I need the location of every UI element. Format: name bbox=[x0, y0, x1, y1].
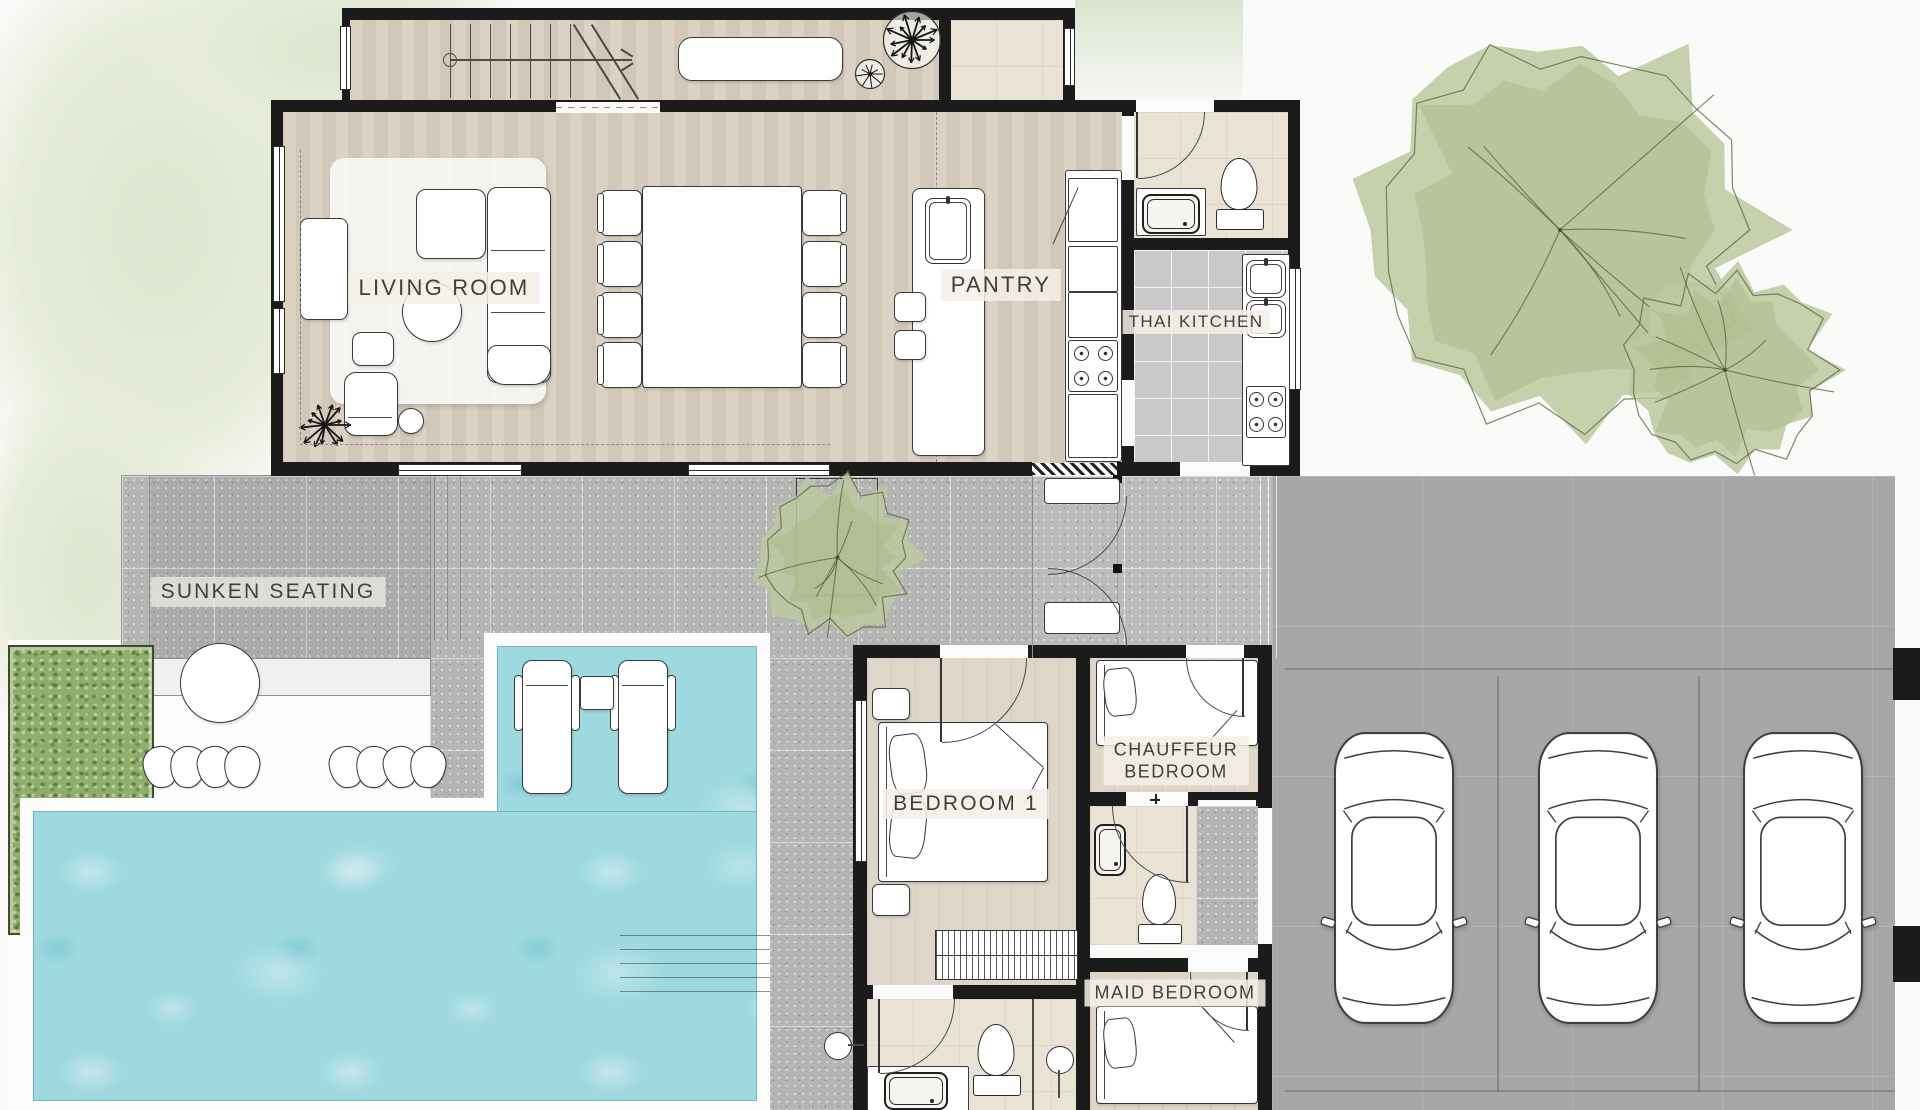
stair-direction-line bbox=[450, 59, 632, 61]
shower-partition bbox=[1032, 999, 1034, 1110]
cabinet bbox=[1068, 246, 1118, 292]
tree-icon bbox=[1320, 0, 1800, 470]
floor-plan: LIVING ROOM PANTRY THAI KITCHEN SUNKEN S… bbox=[0, 0, 1920, 1110]
stair-hall-floor bbox=[349, 20, 939, 102]
bathroom-sink bbox=[884, 1072, 948, 1110]
door-opening bbox=[1188, 958, 1248, 972]
kitchen-sink bbox=[1246, 260, 1286, 298]
seat-cushions bbox=[338, 746, 446, 788]
garage-line bbox=[1285, 1090, 1895, 1092]
tap-symbol bbox=[1150, 794, 1160, 804]
pantry-label: PANTRY bbox=[941, 269, 1061, 301]
glass-door bbox=[688, 464, 830, 476]
window bbox=[855, 700, 867, 862]
door-opening bbox=[1186, 645, 1244, 658]
stair-step bbox=[470, 24, 471, 98]
outdoor-shower bbox=[824, 1032, 852, 1060]
garage-bay-divider bbox=[1698, 676, 1700, 1092]
door-opening bbox=[1180, 462, 1250, 476]
stair-step bbox=[490, 24, 491, 98]
curtain-dashed-line bbox=[300, 150, 301, 440]
toilet bbox=[973, 1024, 1019, 1096]
foyer-step-edge bbox=[1268, 476, 1269, 658]
chauffeur-label-line2: BEDROOM bbox=[1114, 761, 1239, 783]
step-line bbox=[434, 476, 435, 640]
nightstand bbox=[872, 884, 910, 916]
service-yard bbox=[1196, 806, 1258, 945]
lounger-arm bbox=[571, 675, 580, 731]
step-line bbox=[460, 476, 461, 640]
door-opening bbox=[873, 985, 953, 999]
garage-wall-stub bbox=[1893, 926, 1920, 982]
island-sink bbox=[925, 198, 971, 264]
dining-chair bbox=[802, 241, 844, 287]
tv-console bbox=[300, 218, 348, 320]
threshold-hatch bbox=[1032, 463, 1117, 475]
toilet bbox=[1216, 158, 1262, 230]
stair-step bbox=[530, 24, 531, 98]
foyer-step-edge bbox=[1276, 476, 1277, 658]
garage-wall-stub bbox=[1893, 648, 1920, 700]
pillow bbox=[1102, 666, 1139, 717]
tree-icon bbox=[1600, 245, 1850, 495]
dining-chair bbox=[802, 190, 844, 236]
ottoman bbox=[352, 332, 394, 366]
shower-head bbox=[1046, 1046, 1074, 1074]
cooktop bbox=[1068, 340, 1118, 392]
lounger-arm bbox=[667, 675, 676, 731]
console-table bbox=[678, 37, 843, 81]
bathroom-sink bbox=[1142, 194, 1200, 234]
window bbox=[1064, 28, 1075, 86]
dining-chair bbox=[600, 342, 642, 388]
yard-opening bbox=[1258, 808, 1272, 944]
window bbox=[340, 26, 351, 90]
living-room-label: LIVING ROOM bbox=[349, 272, 540, 304]
chauffeur-bedroom-label: CHAUFFEUR BEDROOM bbox=[1104, 736, 1249, 785]
step-line bbox=[447, 476, 448, 640]
cabinet bbox=[1068, 394, 1118, 458]
stair-step bbox=[510, 24, 511, 98]
sunken-seating-label: SUNKEN SEATING bbox=[151, 577, 386, 607]
toilet bbox=[1138, 874, 1180, 944]
cushion bbox=[222, 744, 263, 790]
sun-lounger bbox=[522, 660, 572, 794]
door-opening bbox=[940, 645, 1028, 658]
bedroom1-label: BEDROOM 1 bbox=[883, 789, 1049, 819]
garden-wash bbox=[1075, 0, 1243, 112]
door-opening bbox=[1136, 100, 1214, 112]
nightstand bbox=[872, 688, 910, 720]
cushion bbox=[408, 744, 449, 790]
wall bbox=[271, 462, 1032, 476]
door-opening bbox=[1122, 116, 1134, 180]
stair-start-circle bbox=[443, 53, 457, 67]
garage-bay-divider bbox=[1497, 676, 1499, 1092]
dining-table bbox=[642, 186, 802, 388]
yard-threshold bbox=[1198, 946, 1256, 952]
terrace bbox=[430, 658, 485, 815]
car bbox=[1523, 700, 1673, 1056]
dining-chair bbox=[600, 190, 642, 236]
round-daybed bbox=[180, 643, 260, 723]
dining-chair bbox=[600, 292, 642, 338]
foyer-edge bbox=[1032, 476, 1033, 658]
window bbox=[273, 308, 285, 374]
column bbox=[1113, 564, 1122, 573]
dining-chair bbox=[802, 292, 844, 338]
curtain-dashed-line bbox=[300, 444, 830, 445]
dining-chair bbox=[600, 241, 642, 287]
pillow bbox=[1101, 1016, 1138, 1069]
armchair bbox=[344, 372, 398, 436]
thai-kitchen-label: THAI KITCHEN bbox=[1123, 310, 1270, 334]
lounger-arm bbox=[514, 675, 523, 731]
shower-arm bbox=[848, 1044, 864, 1046]
wardrobe bbox=[935, 930, 1078, 980]
seat-cushions bbox=[152, 746, 260, 788]
foyer-step-edge bbox=[1260, 476, 1261, 658]
wall bbox=[1076, 658, 1090, 1110]
armchair-back-line bbox=[348, 417, 392, 418]
window bbox=[273, 146, 285, 302]
side-table bbox=[398, 408, 424, 434]
lounger-side-table bbox=[580, 676, 614, 710]
oven-appliance bbox=[1068, 178, 1118, 242]
stair-step bbox=[550, 24, 551, 98]
chauffeur-label-line1: CHAUFFEUR bbox=[1114, 739, 1239, 761]
sun-lounger bbox=[618, 660, 668, 794]
bar-stool bbox=[894, 330, 926, 360]
glass-door bbox=[398, 464, 522, 476]
wall bbox=[342, 8, 1075, 20]
sofa-cushion-line bbox=[491, 250, 545, 251]
outdoor-steps bbox=[620, 935, 770, 993]
tree-planter bbox=[796, 478, 878, 596]
maid-bedroom-label: MAID BEDROOM bbox=[1084, 980, 1265, 1007]
car bbox=[1728, 700, 1878, 1056]
wall bbox=[939, 8, 951, 102]
sofa-section bbox=[416, 189, 486, 259]
bar-stool bbox=[894, 292, 926, 322]
sofa-armrest bbox=[487, 345, 551, 385]
cooktop bbox=[1246, 386, 1286, 438]
yard-threshold bbox=[1198, 800, 1256, 806]
threshold-dashed bbox=[556, 102, 660, 113]
vestibule-floor bbox=[950, 20, 1063, 100]
door-opening bbox=[1122, 380, 1134, 446]
cabinet bbox=[1068, 292, 1118, 338]
wall bbox=[1134, 238, 1300, 250]
sofa-cushion-line bbox=[491, 312, 545, 313]
garage-line bbox=[1285, 668, 1895, 670]
stair-step bbox=[570, 24, 571, 98]
window bbox=[1289, 268, 1301, 390]
dining-chair bbox=[802, 342, 844, 388]
shower-arm bbox=[1058, 1070, 1060, 1098]
car bbox=[1319, 700, 1469, 1056]
